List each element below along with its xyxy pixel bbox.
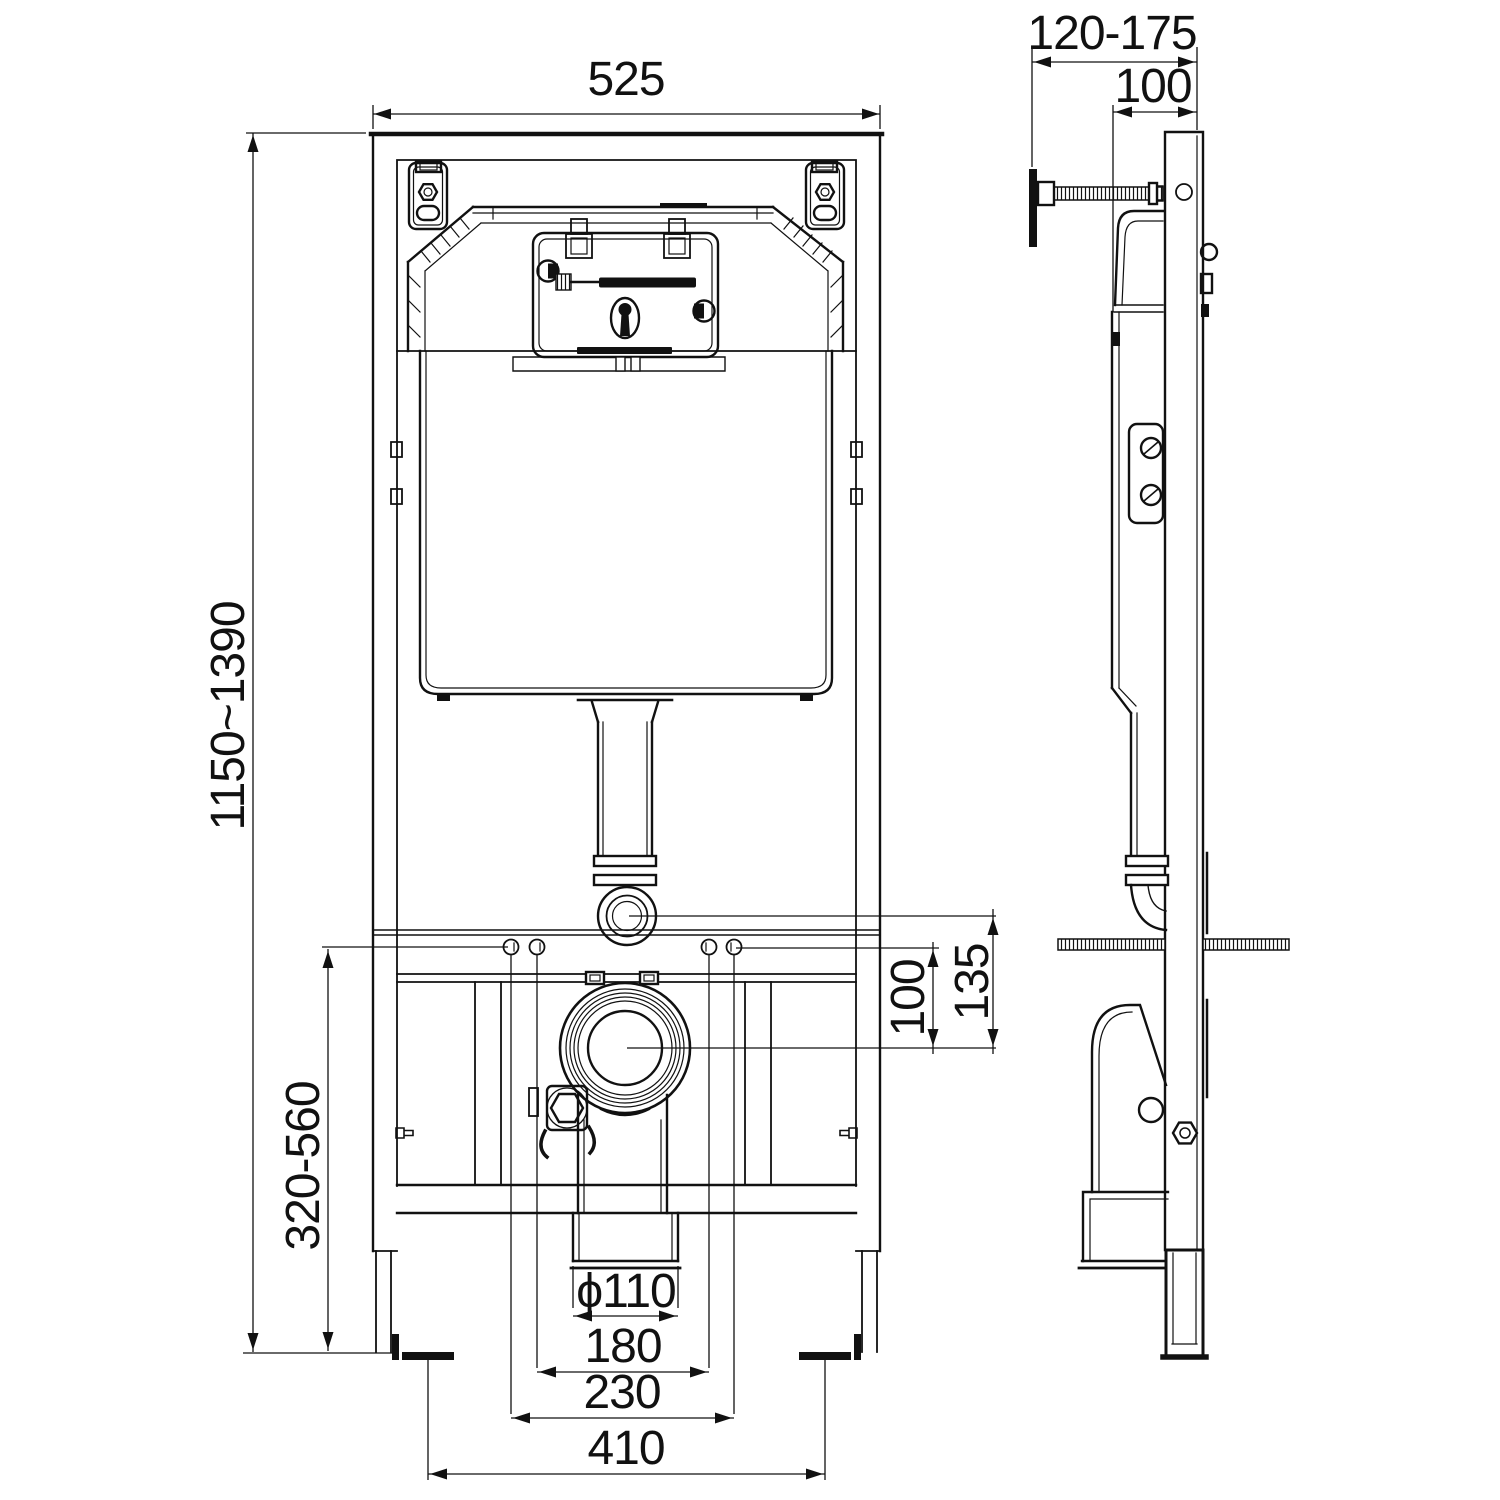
dim-label-outlet-height: 320-560 — [277, 1081, 330, 1250]
dim-drain-diameter: ϕ110 — [573, 1265, 678, 1322]
dim-label-frame-depth: 100 — [1114, 60, 1191, 113]
dim-label-drain-diameter: ϕ110 — [576, 1265, 675, 1318]
wall-anchor-rod — [1037, 187, 1163, 200]
foot-plate-left — [402, 1352, 454, 1360]
dim-label-fixing-width: 230 — [583, 1366, 660, 1419]
fill-valve-rod — [599, 278, 696, 288]
dim-label-flush-offset: 135 — [946, 943, 999, 1020]
lid-seam — [660, 203, 707, 208]
drawing-svg: 525 1150~1390 320-560 100 135 — [0, 0, 1500, 1500]
foot-plate-right — [799, 1352, 851, 1360]
valve-knurl — [556, 274, 571, 290]
dim-label-front-width: 525 — [587, 53, 664, 106]
installation-drawing: 525 1150~1390 320-560 100 135 — [0, 0, 1500, 1500]
panel-bottom-bar — [577, 347, 672, 354]
dim-label-wall-depth: 120-175 — [1027, 7, 1196, 60]
dim-label-frame-height: 1150~1390 — [202, 601, 255, 830]
pipe-coupling — [594, 856, 656, 866]
wall-anchor-plate — [1029, 169, 1037, 247]
leg-side — [1163, 1250, 1206, 1357]
dim-label-foot-spacing: 410 — [587, 1422, 664, 1475]
dim-label-fixing-offset: 100 — [882, 959, 935, 1036]
